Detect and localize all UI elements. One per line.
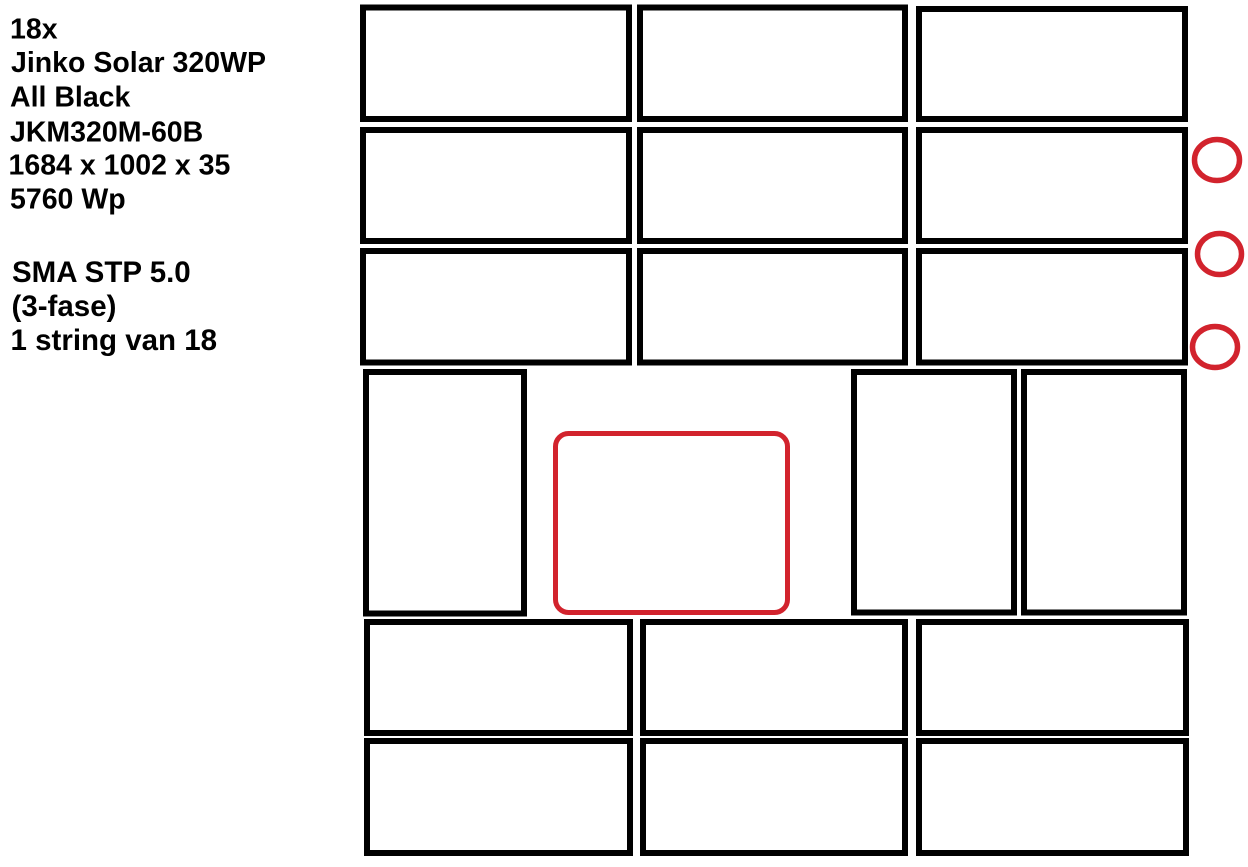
svg-text:SMA STP 5.0: SMA STP 5.0 [12,256,191,289]
svg-text:Jinko Solar 320WP: Jinko Solar 320WP [11,47,266,79]
svg-text:JKM320M-60B: JKM320M-60B [10,117,203,149]
svg-text:1 string van 18: 1 string van 18 [11,324,218,357]
svg-text:(3-fase): (3-fase) [12,290,117,323]
svg-text:5760 Wp: 5760 Wp [10,184,126,216]
svg-text:All Black: All Black [10,82,131,114]
svg-text:1684 x 1002 x 35: 1684 x 1002 x 35 [9,150,231,182]
svg-text:18x: 18x [10,14,58,46]
